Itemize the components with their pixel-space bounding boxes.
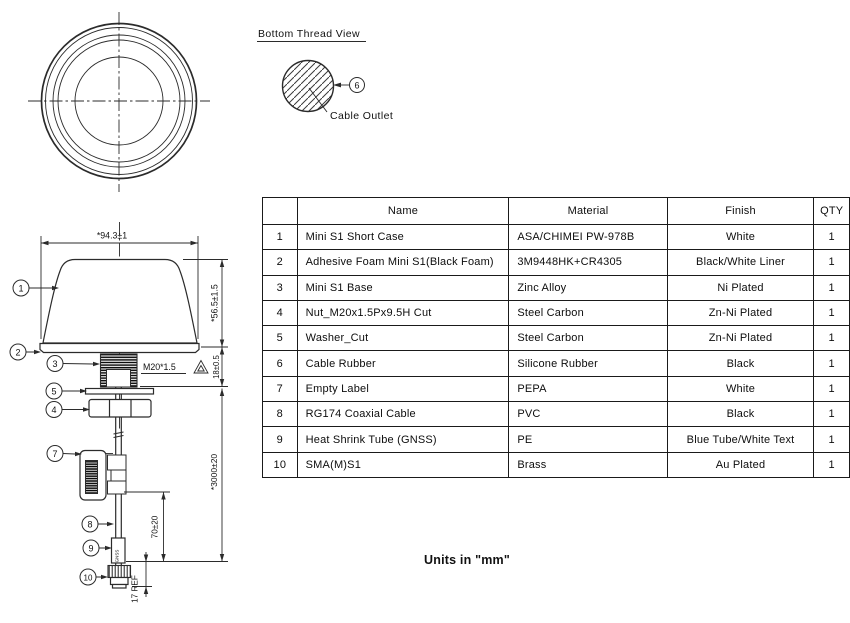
side-view: GNSS <box>40 222 199 588</box>
cell-qty: 1 <box>814 326 850 351</box>
cell-no: 8 <box>263 402 298 427</box>
cell-finish: Zn-Ni Plated <box>667 326 814 351</box>
cell-name: Washer_Cut <box>297 326 509 351</box>
svg-text:*56.5±1.5: *56.5±1.5 <box>210 284 220 322</box>
svg-text:1: 1 <box>18 283 23 293</box>
cable-ferrite <box>108 455 127 494</box>
cell-material: ASA/CHIMEI PW-978B <box>509 225 667 250</box>
balloon-2: 2 <box>10 344 41 360</box>
cell-no: 4 <box>263 300 298 325</box>
svg-text:9: 9 <box>88 543 93 553</box>
cell-name: Cable Rubber <box>297 351 509 376</box>
dome-shell <box>43 260 197 344</box>
cell-material: Silicone Rubber <box>509 351 667 376</box>
svg-text:5: 5 <box>51 386 56 396</box>
svg-text:10: 10 <box>84 573 93 582</box>
mold-mark-icon <box>194 361 208 374</box>
thread-spec: M20*1.5 <box>141 362 186 374</box>
cell-no: 3 <box>263 275 298 300</box>
balloon-4: 4 <box>46 402 90 418</box>
cable-rubber <box>107 370 131 388</box>
cell-finish: Blue Tube/White Text <box>667 427 814 452</box>
top-view-centerlines <box>28 12 210 192</box>
cell-finish: Au Plated <box>667 452 814 477</box>
cell-material: Zinc Alloy <box>509 275 667 300</box>
cell-qty: 1 <box>814 351 850 376</box>
svg-text:6: 6 <box>354 80 359 90</box>
cell-material: PE <box>509 427 667 452</box>
cell-material: PVC <box>509 402 667 427</box>
balloon-6: 6 <box>350 78 365 93</box>
cell-material: 3M9448HK+CR4305 <box>509 250 667 275</box>
header-name: Name <box>297 198 509 225</box>
top-view <box>28 12 210 192</box>
bottom-thread-view: Bottom Thread View 6 Cable Outlet <box>257 28 393 122</box>
balloon-9: 9 <box>83 540 112 556</box>
cell-qty: 1 <box>814 225 850 250</box>
heat-shrink-tube: GNSS <box>112 538 126 563</box>
cell-name: Mini S1 Base <box>297 275 509 300</box>
parts-table-header: Name Material Finish QTY <box>263 198 850 225</box>
cell-qty: 1 <box>814 376 850 401</box>
balloon-7: 7 <box>47 446 82 462</box>
cell-material: PEPA <box>509 376 667 401</box>
base-flange <box>40 344 199 353</box>
header-material: Material <box>509 198 667 225</box>
svg-text:7: 7 <box>52 449 57 459</box>
cell-finish: Black/White Liner <box>667 250 814 275</box>
cell-name: Nut_M20x1.5Px9.5H Cut <box>297 300 509 325</box>
cell-finish: Black <box>667 402 814 427</box>
units-note: Units in "mm" <box>424 553 510 567</box>
cell-no: 10 <box>263 452 298 477</box>
cell-qty: 1 <box>814 300 850 325</box>
cell-material: Steel Carbon <box>509 300 667 325</box>
cell-name: SMA(M)S1 <box>297 452 509 477</box>
table-row: 3 Mini S1 Base Zinc Alloy Ni Plated 1 <box>263 275 850 300</box>
label-barcode <box>86 461 98 494</box>
cell-name: RG174 Coaxial Cable <box>297 402 509 427</box>
svg-text:18±0.5: 18±0.5 <box>212 354 221 378</box>
table-row: 6 Cable Rubber Silicone Rubber Black 1 <box>263 351 850 376</box>
cell-qty: 1 <box>814 275 850 300</box>
balloon-1: 1 <box>13 280 59 296</box>
balloon-3: 3 <box>47 356 100 372</box>
svg-text:3: 3 <box>52 359 57 369</box>
cell-qty: 1 <box>814 452 850 477</box>
cell-no: 6 <box>263 351 298 376</box>
cell-no: 2 <box>263 250 298 275</box>
nut <box>89 400 151 418</box>
cell-no: 7 <box>263 376 298 401</box>
cell-no: 1 <box>263 225 298 250</box>
table-row: 10 SMA(M)S1 Brass Au Plated 1 <box>263 452 850 477</box>
svg-text:2: 2 <box>15 347 20 357</box>
cell-material: Brass <box>509 452 667 477</box>
svg-text:4: 4 <box>51 405 56 415</box>
cell-material: Steel Carbon <box>509 326 667 351</box>
svg-text:M20*1.5: M20*1.5 <box>143 362 176 372</box>
svg-text:8: 8 <box>87 519 92 529</box>
header-qty: QTY <box>814 198 850 225</box>
table-row: 5 Washer_Cut Steel Carbon Zn-Ni Plated 1 <box>263 326 850 351</box>
svg-text:70±20: 70±20 <box>151 515 160 538</box>
cable-outlet-label: Cable Outlet <box>330 110 393 122</box>
header-finish: Finish <box>667 198 814 225</box>
cell-qty: 1 <box>814 427 850 452</box>
cell-qty: 1 <box>814 250 850 275</box>
dim-shrink-offset: 70±20 <box>124 492 170 562</box>
cell-qty: 1 <box>814 402 850 427</box>
dim-connector-length: 17 REF <box>131 552 153 603</box>
washer <box>86 389 154 395</box>
cell-name: Empty Label <box>297 376 509 401</box>
cell-no: 9 <box>263 427 298 452</box>
balloon-8: 8 <box>82 516 114 532</box>
svg-text:GNSS: GNSS <box>115 550 120 563</box>
header-no <box>263 198 298 225</box>
balloon-10: 10 <box>80 569 108 585</box>
sma-connector <box>108 566 131 589</box>
balloon-5: 5 <box>46 383 87 399</box>
svg-text:*3000±20: *3000±20 <box>209 454 219 491</box>
leader-arrow <box>333 83 341 88</box>
cell-name: Adhesive Foam Mini S1(Black Foam) <box>297 250 509 275</box>
cell-name: Heat Shrink Tube (GNSS) <box>297 427 509 452</box>
table-row: 2 Adhesive Foam Mini S1(Black Foam) 3M94… <box>263 250 850 275</box>
table-row: 1 Mini S1 Short Case ASA/CHIMEI PW-978B … <box>263 225 850 250</box>
svg-text:17 REF: 17 REF <box>131 575 140 603</box>
cell-no: 5 <box>263 326 298 351</box>
cell-finish: Ni Plated <box>667 275 814 300</box>
cell-name: Mini S1 Short Case <box>297 225 509 250</box>
drawing-page: Bottom Thread View 6 Cable Outlet <box>0 0 850 623</box>
table-row: 8 RG174 Coaxial Cable PVC Black 1 <box>263 402 850 427</box>
parts-table: Name Material Finish QTY 1 Mini S1 Short… <box>262 197 850 478</box>
table-row: 7 Empty Label PEPA White 1 <box>263 376 850 401</box>
cell-finish: Zn-Ni Plated <box>667 300 814 325</box>
cell-finish: White <box>667 225 814 250</box>
svg-text:*94.3±1: *94.3±1 <box>97 231 127 241</box>
table-row: 4 Nut_M20x1.5Px9.5H Cut Steel Carbon Zn-… <box>263 300 850 325</box>
thread-view-title: Bottom Thread View <box>258 28 360 40</box>
cell-finish: Black <box>667 351 814 376</box>
cell-finish: White <box>667 376 814 401</box>
cable-outlet-section <box>283 61 334 112</box>
table-row: 9 Heat Shrink Tube (GNSS) PE Blue Tube/W… <box>263 427 850 452</box>
